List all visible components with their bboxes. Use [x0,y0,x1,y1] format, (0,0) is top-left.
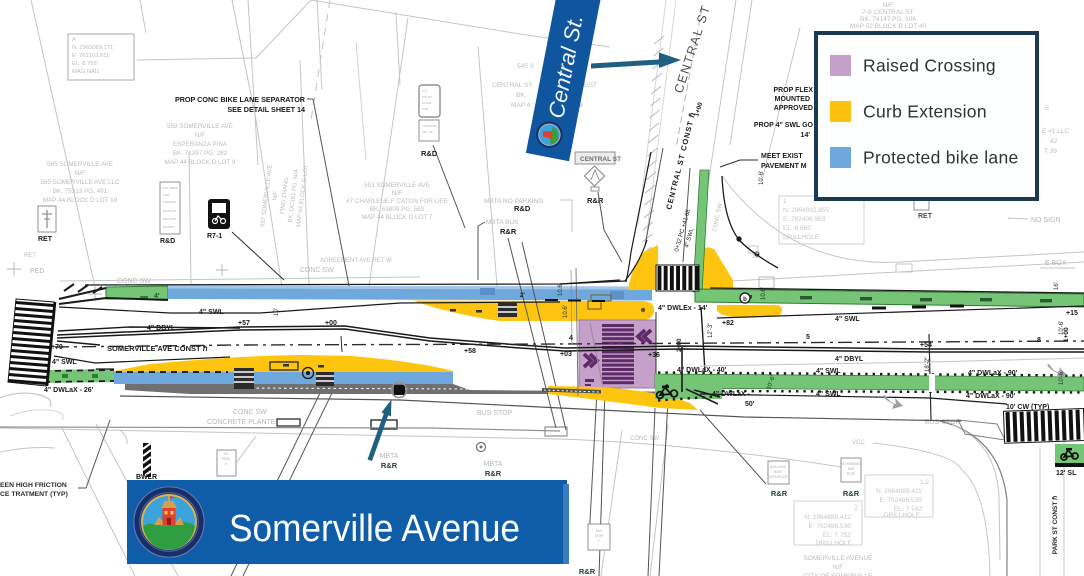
svg-text:553 SOMERVILLE AVE: 553 SOMERVILLE AVE [364,182,430,189]
svg-text:DRILLHOLE: DRILLHOLE [816,540,853,547]
svg-text:BK.: BK. [516,92,527,99]
svg-text:10.6': 10.6' [761,287,767,300]
svg-text:MUST: MUST [773,470,782,474]
svg-text:EXCEPT: EXCEPT [163,225,175,229]
svg-text:Protected bike lane: Protected bike lane [863,148,1019,168]
svg-text:PAY HERE: PAY HERE [163,186,178,190]
svg-text:4" DWLaX - 90': 4" DWLaX - 90' [968,370,1018,377]
svg-text:R&R: R&R [587,196,604,205]
svg-text:4" DBYL: 4" DBYL [147,325,176,332]
svg-text:565 SOMERVILLE AVE: 565 SOMERVILLE AVE [47,161,113,168]
svg-text:DRILLHOLE: DRILLHOLE [783,234,820,241]
svg-text:MOUNTED: MOUNTED [775,96,810,103]
svg-text:MAG NAIL: MAG NAIL [72,69,100,75]
svg-text:SOMERVILLE AVE CONST ℏ: SOMERVILLE AVE CONST ℏ [107,344,208,353]
svg-text:CONC SW: CONC SW [630,436,659,442]
svg-text:AGREEMENT AVE RET W: AGREEMENT AVE RET W [320,258,392,264]
svg-text:4: 4 [569,335,573,342]
svg-text:MON-FRI: MON-FRI [423,124,436,128]
svg-text:NO: NO [224,452,229,456]
svg-text:8A - 6P: 8A - 6P [423,130,433,134]
svg-text:E: 762406.983': E: 762406.983' [783,216,827,223]
svg-text:SOMERVILLE AVENUE: SOMERVILLE AVENUE [803,555,873,562]
svg-text:⇅: ⇅ [225,462,228,466]
svg-text:2+00: 2+00 [677,338,683,352]
svg-text:DRILLHOLE: DRILLHOLE [884,512,921,519]
svg-text:N/F: N/F [833,564,844,571]
svg-text:10.6': 10.6' [558,283,564,296]
svg-text:TURN RIGHT: TURN RIGHT [768,475,788,479]
svg-text:50': 50' [745,401,755,408]
svg-text:MAP 52 BLOCK B LOT 40: MAP 52 BLOCK B LOT 40 [850,23,927,30]
svg-text:R&R: R&R [771,489,788,498]
svg-text:PROP CONC BIKE LANE SEPARATOR: PROP CONC BIKE LANE SEPARATOR [175,95,306,104]
svg-text:P $: P $ [422,89,427,93]
svg-text:42: 42 [1050,138,1058,145]
svg-text:+79: +79 [51,344,63,351]
svg-text:N: 2965069.171': N: 2965069.171' [72,45,114,51]
svg-text:+03: +03 [560,351,572,358]
svg-text:BUS: BUS [848,467,855,471]
svg-text:+82: +82 [722,320,734,327]
svg-text:2: 2 [854,505,858,512]
svg-text:NO SIGN: NO SIGN [1031,217,1061,224]
svg-text:4" DWLaX - 90': 4" DWLaX - 90' [966,393,1016,400]
svg-text:MBTA: MBTA [484,461,503,468]
svg-text:b: b [743,297,747,303]
svg-text:8AM-8PM: 8AM-8PM [163,217,177,221]
svg-text:1: 1 [783,198,787,205]
svg-text:BUS: BUS [596,529,603,533]
svg-text:CE TRATMENT (TYP): CE TRATMENT (TYP) [0,491,68,498]
svg-text:R&D: R&D [514,204,531,213]
svg-text:N: 2964889.411': N: 2964889.411' [876,488,923,495]
svg-text:PED: PED [30,268,44,275]
svg-text:10': 10' [274,308,280,316]
svg-text:7-9 CENTRAL ST: 7-9 CENTRAL ST [862,9,913,16]
svg-text:+36: +36 [648,352,660,359]
svg-text:N/F: N/F [195,132,205,139]
svg-text:MAP 4: MAP 4 [511,102,531,109]
svg-text:+57: +57 [238,320,250,327]
svg-text:R&R: R&R [485,469,502,478]
svg-text:T 39: T 39 [1044,148,1057,155]
svg-text:545 S: 545 S [517,63,535,70]
svg-text:RET: RET [24,253,36,259]
svg-text:CONC SW: CONC SW [233,409,267,416]
svg-text:N: 2964889.412': N: 2964889.412' [804,514,852,521]
svg-text:R7-1: R7-1 [207,233,222,240]
svg-text:EEN HIGH FRICTION: EEN HIGH FRICTION [0,482,67,489]
svg-text:R&D: R&D [160,238,175,245]
svg-text:R&R: R&R [381,461,398,470]
svg-text:R&R: R&R [843,489,860,498]
svg-text:CONC SW: CONC SW [300,267,334,274]
svg-text:BK. 71397 PG. 282: BK. 71397 PG. 282 [173,150,228,157]
svg-text:A: A [72,37,76,43]
svg-text:EL: 8.765': EL: 8.765' [72,61,98,67]
svg-text:N/F: N/F [392,190,402,197]
svg-text:✈: ✈ [598,539,601,543]
svg-text:EL: 8.865': EL: 8.865' [783,225,812,232]
svg-text:CENTRAL ST: CENTRAL ST [580,156,621,163]
svg-text:BWLR: BWLR [136,474,157,481]
svg-text:12'-3": 12'-3" [708,323,714,338]
svg-text:MEET EXIST: MEET EXIST [761,153,803,160]
svg-text:N: 2964982.855': N: 2964982.855' [783,207,831,214]
svg-text:10'-6': 10'-6' [1059,321,1065,335]
svg-text:PAVEMENT M: PAVEMENT M [761,163,807,170]
svg-text:18'-2": 18'-2" [925,357,931,372]
svg-text:CONC SW: CONC SW [117,278,151,285]
svg-text:10'-6': 10'-6' [759,171,765,185]
svg-text:14': 14' [801,132,811,139]
svg-text:APPROVED: APPROVED [774,105,813,112]
svg-text:4" SWL: 4" SWL [816,368,841,375]
svg-text:E BOX: E BOX [1045,260,1067,267]
svg-text:BK. 63809 PG. 563: BK. 63809 PG. 563 [370,206,425,213]
svg-text:PARK ST CONST ℏ: PARK ST CONST ℏ [1051,495,1059,554]
svg-text:MAP 44 BLOCK D LOT 10: MAP 44 BLOCK D LOT 10 [43,197,118,204]
svg-text:CONCRETE PLANTE: CONCRETE PLANTE [207,419,276,426]
svg-text:559 SOMERVILLE AVE: 559 SOMERVILLE AVE [167,123,233,130]
svg-text:4" DWLEx - 14': 4" DWLEx - 14' [658,305,708,312]
svg-text:N/F: N/F [272,190,279,201]
svg-text:4" SWL: 4" SWL [199,309,224,316]
svg-text:SEE DETAIL SHEET 14: SEE DETAIL SHEET 14 [227,105,305,114]
svg-text:E: 762486.536': E: 762486.536' [808,523,852,530]
svg-text:#7 CHARLENE F CATON FOR LIFE: #7 CHARLENE F CATON FOR LIFE [346,198,448,205]
svg-text:PLATE: PLATE [422,101,431,105]
svg-text:BUS LANE: BUS LANE [770,465,786,469]
svg-text:MAP 44 BLOCK D LOT 7: MAP 44 BLOCK D LOT 7 [362,214,433,221]
svg-text:+58: +58 [464,348,476,355]
svg-text:VCC: VCC [852,440,865,446]
svg-text:PARKING: PARKING [163,200,177,204]
svg-text:BUS STOP: BUS STOP [477,410,513,417]
svg-text:+15: +15 [1066,310,1078,317]
svg-text:R&D: R&D [421,149,438,158]
svg-text:PARK: PARK [222,457,231,461]
svg-text:4" SWL: 4" SWL [835,316,860,323]
svg-text:4" DBYL: 4" DBYL [835,356,864,363]
svg-text:Curb Extension: Curb Extension [863,102,987,122]
svg-text:16': 16' [1054,282,1060,290]
svg-text:CENTRAL ST: CENTRAL ST [492,82,532,89]
svg-text:STOP: STOP [595,534,604,538]
svg-text:N/F: N/F [883,2,894,9]
svg-text:E: E [1045,105,1050,112]
svg-text:PAY BY: PAY BY [422,95,432,99]
svg-text:Somerville Avenue: Somerville Avenue [229,508,520,550]
svg-text:NO PARKING: NO PARKING [841,462,861,466]
svg-text:2HR: 2HR [422,107,429,111]
svg-text:MBTA: MBTA [380,453,399,460]
svg-text:10.6': 10.6' [563,305,569,318]
svg-text:4" SWL: 4" SWL [816,391,841,398]
svg-text:12' SL: 12' SL [1056,470,1077,477]
svg-text:E: 762103.611': E: 762103.611' [72,53,110,59]
svg-text:PROP FLEX: PROP FLEX [773,87,813,94]
svg-text:1.2: 1.2 [920,479,929,486]
svg-text:PROP 4" SWL GO: PROP 4" SWL GO [754,122,814,129]
svg-text:Raised Crossing: Raised Crossing [863,56,996,76]
svg-text:MAP 44 BLOCK D LOT 9: MAP 44 BLOCK D LOT 9 [165,159,236,166]
svg-text:RET: RET [918,213,933,220]
svg-text:4" DWLaX -: 4" DWLaX - [712,391,751,398]
svg-text:EL: 7.752': EL: 7.752' [823,532,852,539]
svg-text:STOP: STOP [847,472,856,476]
svg-text:10' CW (TYP): 10' CW (TYP) [1006,404,1049,411]
svg-text:4" DWLaX - 40': 4" DWLaX - 40' [677,367,727,374]
svg-text:10'-6': 10'-6' [1059,371,1065,385]
svg-text:2': 2' [520,293,525,299]
svg-text:E: 762486.535': E: 762486.535' [879,497,923,504]
svg-text:E #1 LLC: E #1 LLC [1042,128,1069,135]
svg-text:+00: +00 [325,320,337,327]
svg-text:+54: +54 [920,342,932,349]
svg-text:2HR: 2HR [163,193,170,197]
svg-text:MBTA BUS: MBTA BUS [486,219,519,226]
svg-text:BK. 75313 PG. 491: BK. 75313 PG. 491 [53,188,108,195]
svg-text:RET: RET [38,236,53,243]
svg-text:R&R: R&R [500,227,517,236]
svg-text:R&R: R&R [579,567,596,576]
svg-text:565 SOMERVILLE AVE LLC: 565 SOMERVILLE AVE LLC [40,179,120,186]
svg-text:4" DWLaX - 26': 4" DWLaX - 26' [44,387,94,394]
svg-text:MON-SAT: MON-SAT [163,209,177,213]
svg-text:4" SWL: 4" SWL [52,359,77,366]
svg-text:5: 5 [806,334,810,341]
svg-text:ESPERANZA PINA: ESPERANZA PINA [173,141,228,148]
svg-text:N/F: N/F [75,170,85,177]
svg-text:BK. 74147 PG. 106: BK. 74147 PG. 106 [860,16,916,23]
svg-text:8: 8 [1037,337,1041,344]
